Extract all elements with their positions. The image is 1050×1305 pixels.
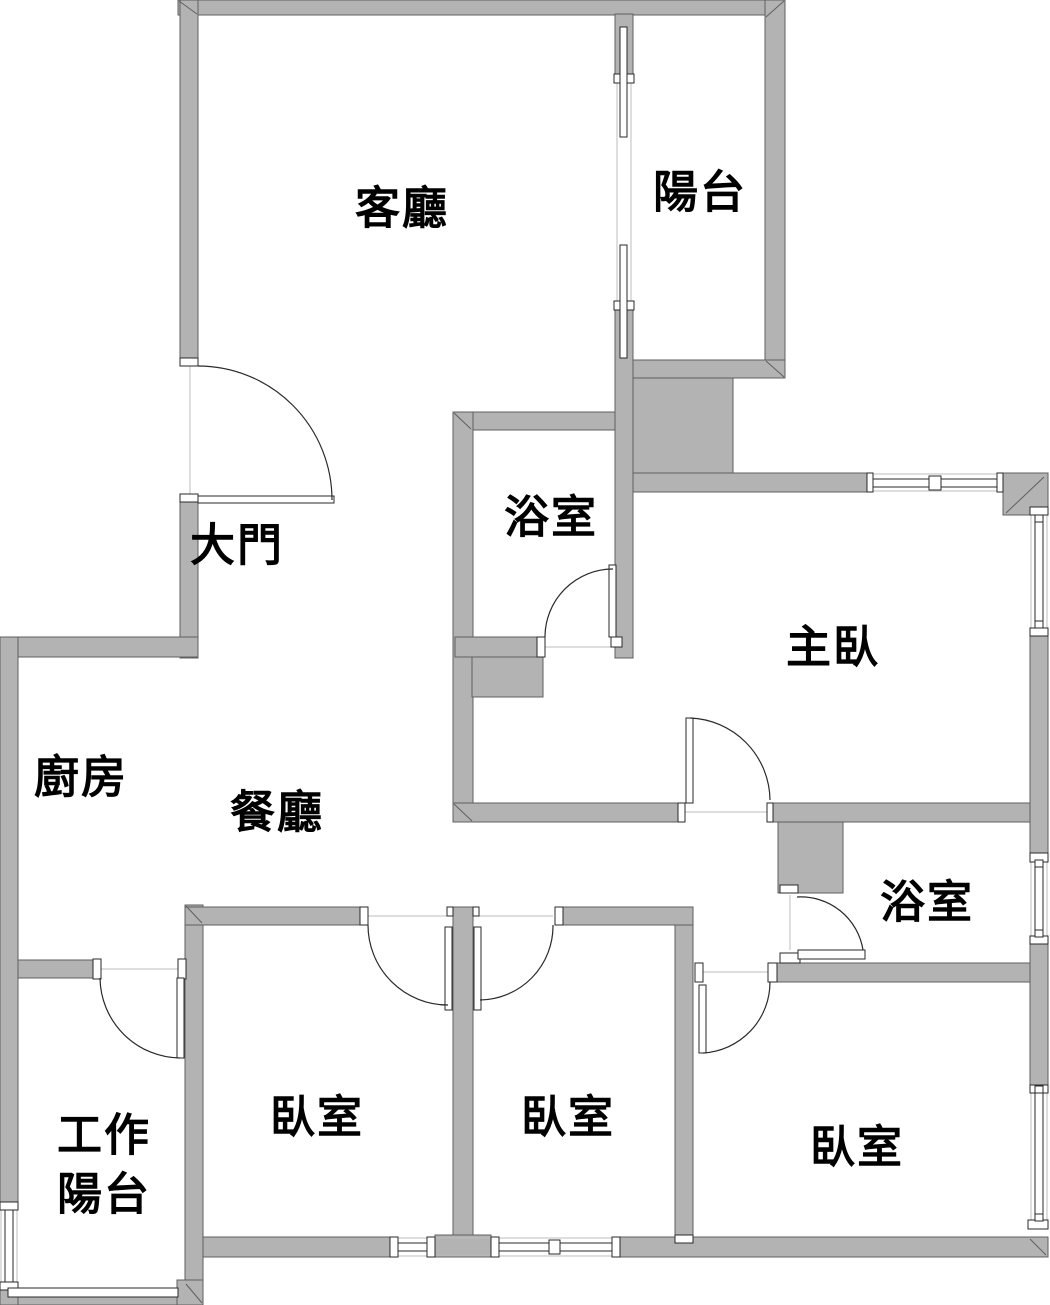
jamb-bathroom2-bottom [780,953,800,963]
wall-corner-southwest-bedroom1 [177,1280,203,1305]
jamb-divider-west-cap [447,907,453,916]
jamb-bedroom2-right [555,907,563,925]
wall-bathroom1-north [455,412,615,430]
wall-outer-west [0,637,18,1203]
wall-east-bathroom2 [1030,940,1048,1085]
duct-bathroom1 [472,657,543,697]
jamb-master-left [678,803,685,822]
wall-balcony-divider-lower [615,309,633,658]
door-arc-master [690,718,770,800]
wall-workbalcony-divider [18,960,93,978]
door-arc-bathroom1 [545,569,613,637]
wall-master-north [633,473,867,492]
door-leaf-bedroom2 [474,927,481,1010]
door-leaf-bathroom2 [798,950,865,959]
window-east-2 [1035,867,1043,931]
jamb-window-west-top [0,1202,18,1210]
door-arc-bathroom2 [797,897,863,950]
jamb-window-east1-top [1030,507,1048,515]
window-east-2-cap-top [1035,860,1043,867]
jamb-slider-upper-east [627,74,634,83]
duct-below-balcony [633,378,733,473]
wall-bedroom2-east [675,907,693,1255]
wall-living-west-upper [180,0,198,366]
room-label-main-entrance: 大門 [190,515,284,574]
room-label-bedroom-middle: 臥室 [521,1087,615,1146]
jamb-bedroom3-right [768,963,777,982]
room-label-work-balcony: 工作 陽台 [57,1106,151,1225]
door-arc-bedroom2 [480,925,553,1000]
window-master-north-mullion [929,476,941,490]
jamb-bedroom2-east-bottom-cap [675,1235,693,1243]
window-east-3-cap-bottom [1035,1214,1043,1221]
jamb-bathroom1-hinge [611,637,622,647]
duct-bathroom2 [778,822,843,893]
jamb-window-south2-right [612,1237,620,1257]
wall-bathroom1-west [453,412,473,822]
door-leaf-workbalcony [177,978,184,1058]
room-label-living-room: 客廳 [355,178,449,237]
door-arc-bedroom1 [368,925,448,1005]
wall-balcony-south [633,360,785,378]
slider-panel-upper [620,27,627,137]
wall-master-south-left [453,803,678,822]
window-east-1-cap-top [1035,515,1043,522]
door-arc-bedroom3 [703,982,770,1053]
window-east-3-cap-top [1035,1086,1043,1093]
jamb-main-door-top [180,358,198,366]
wall-bathroom2-south [777,963,1030,982]
wall-east-master [1030,633,1048,853]
jamb-window-master-east [997,473,1003,492]
room-label-bedroom-left: 臥室 [270,1087,364,1146]
room-label-bathroom-main: 浴室 [504,487,598,546]
jamb-window-south1-right [427,1237,435,1257]
room-label-bedroom-right: 臥室 [810,1117,904,1176]
room-label-work-balcony-line2: 陽台 [57,1165,151,1224]
jamb-bathroom2-top [780,885,798,893]
window-west-workbalcony [5,1210,13,1282]
jamb-bedroom1-left [360,907,368,925]
window-south-workbalcony [8,1288,178,1297]
jamb-window-south2-left [491,1237,499,1257]
window-east-1 [1035,521,1043,622]
room-label-kitchen: 廚房 [34,747,128,806]
wall-south-a [203,1237,390,1257]
jamb-window-east1-bottom [1030,628,1048,636]
wall-top [178,0,785,15]
window-south-2-mullion [549,1240,560,1254]
window-east-2-cap-bottom [1035,930,1043,937]
wall-master-south-right [773,803,1030,822]
room-label-master-bedroom: 主臥 [786,617,880,676]
wall-bedroom-divider [453,907,473,1237]
floor-plan: 客廳 陽台 浴室 主臥 大門 廚房 餐廳 浴室 臥室 臥室 臥室 工作 陽台 [0,0,1050,1305]
door-leaf-master [686,718,693,803]
door-arc-main-entrance [198,366,332,500]
wall-bedroom2-north [563,907,693,925]
slider-panel-lower [620,245,627,358]
jamb-window-master-west [867,473,873,492]
wall-balcony-east [765,0,785,378]
jamb-workbalcony-left [93,959,101,979]
room-label-dining-room: 餐廳 [230,782,324,841]
door-arc-workbalcony [100,978,180,1058]
jamb-main-door-bottom [180,494,198,502]
wall-bedroom1-north [185,907,360,925]
jamb-slider-lower-east [627,301,634,310]
jamb-master-right [767,803,773,822]
window-south-1 [398,1243,427,1251]
jamb-window-south1-left [390,1237,398,1257]
room-label-balcony: 陽台 [653,162,747,221]
door-leaf-bathroom1 [609,565,616,637]
jamb-workbalcony-right [178,959,186,979]
wall-bathroom1-south [455,637,543,657]
door-leaf-main [198,496,334,503]
jamb-bedroom3-left [695,963,703,982]
door-leaf-bedroom3 [699,985,706,1053]
window-east-1-cap-bottom [1035,621,1043,628]
room-label-bathroom-ensuite: 浴室 [880,872,974,931]
jamb-divider-east-cap [473,907,479,916]
door-leaf-bedroom1 [445,927,452,1010]
window-east-3 [1035,1093,1043,1215]
wall-bedroom1-west [185,905,203,1285]
jamb-bathroom1-left [537,637,545,657]
wall-kitchen-north [0,637,198,657]
room-label-work-balcony-line1: 工作 [57,1106,151,1165]
